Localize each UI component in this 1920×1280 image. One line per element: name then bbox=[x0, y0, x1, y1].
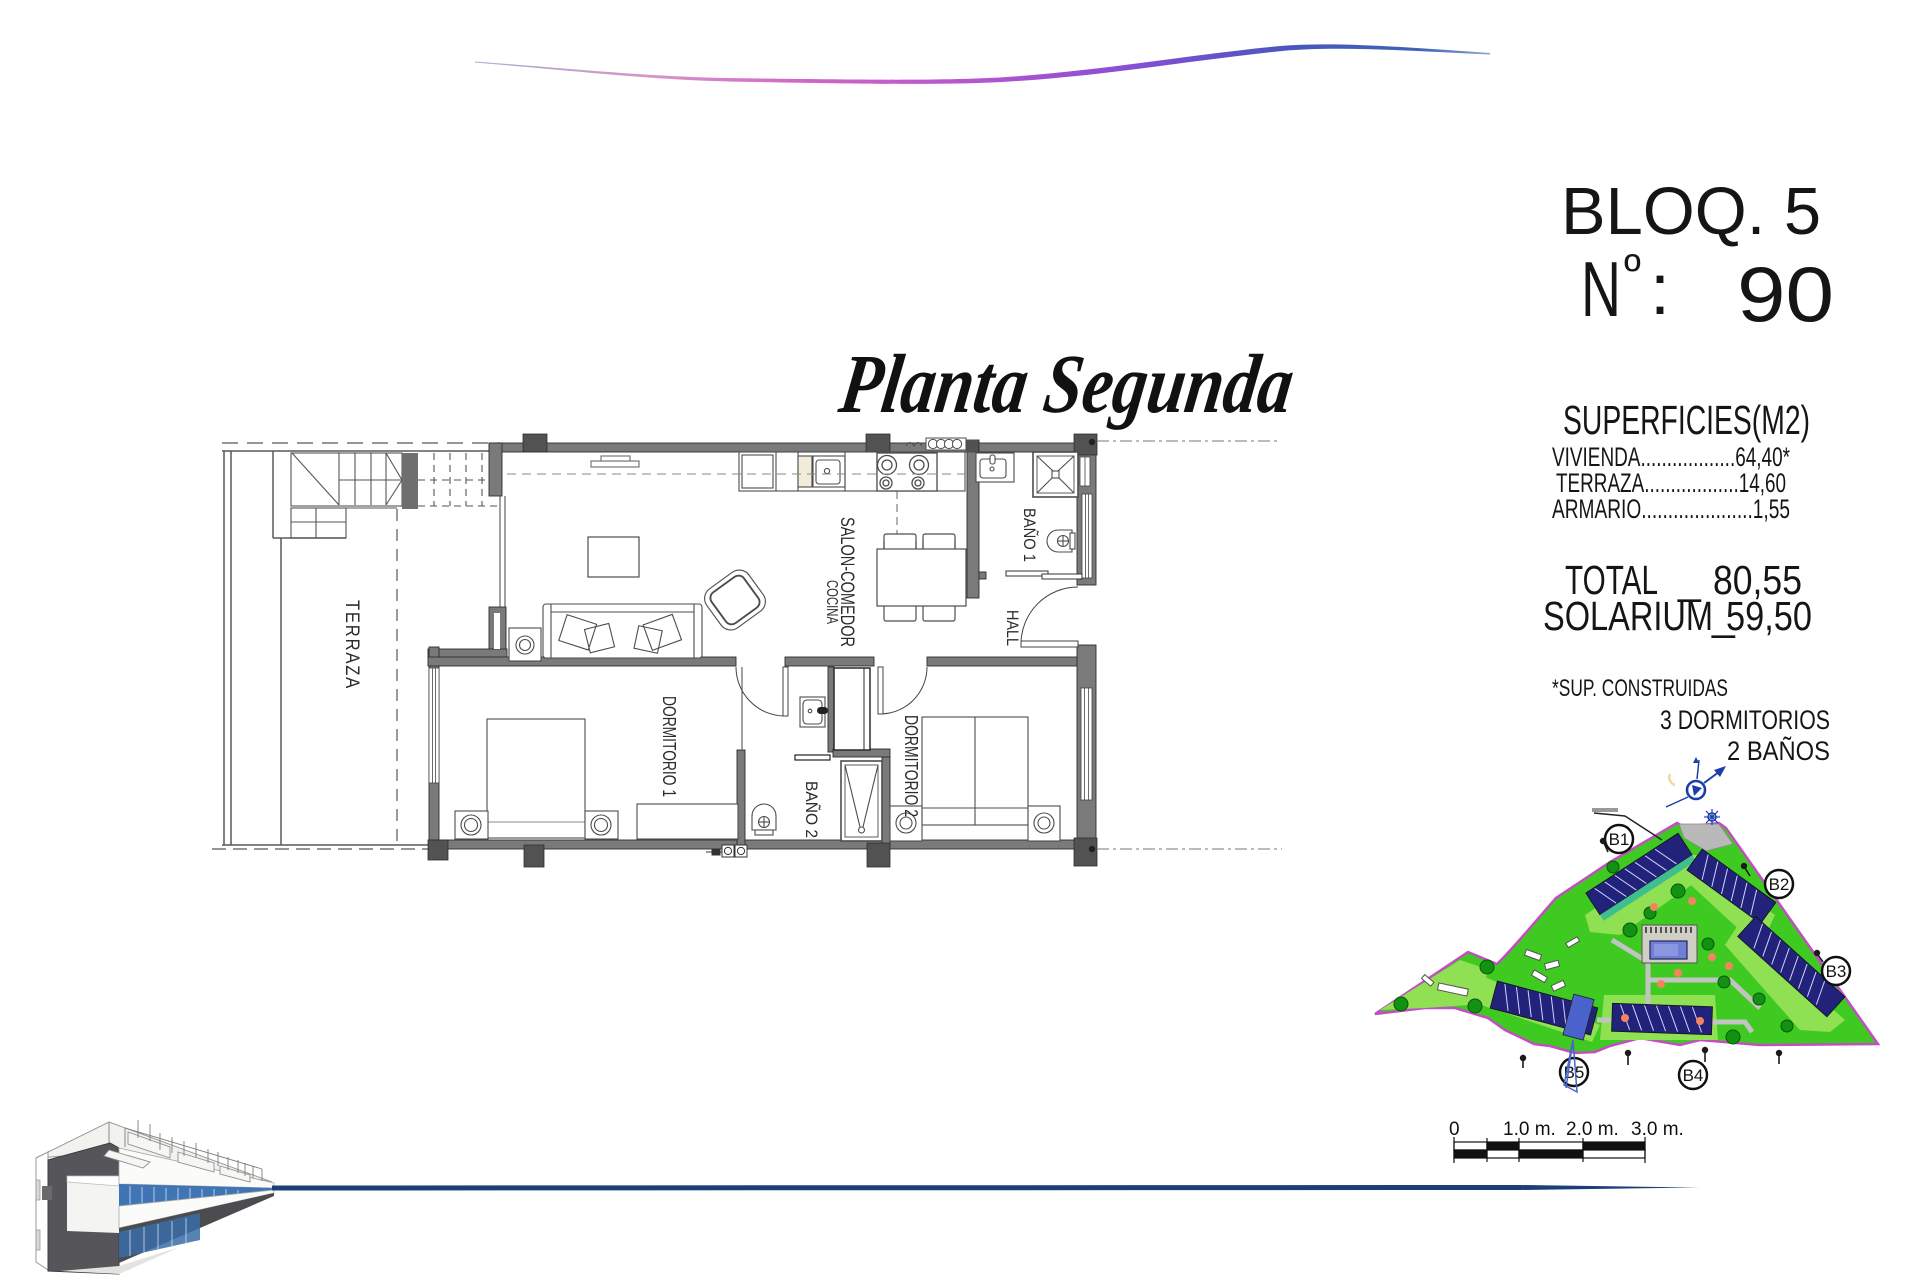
svg-text:BAÑO 1: BAÑO 1 bbox=[1020, 508, 1039, 562]
svg-text:2 BAÑOS: 2 BAÑOS bbox=[1727, 735, 1830, 766]
svg-text:*SUP. CONSTRUIDAS: *SUP. CONSTRUIDAS bbox=[1552, 675, 1728, 702]
svg-text:B4: B4 bbox=[1683, 1066, 1704, 1085]
svg-text:SUPERFICIES(M2): SUPERFICIES(M2) bbox=[1563, 397, 1810, 443]
svg-text:Planta Segunda: Planta Segunda bbox=[834, 338, 1300, 431]
svg-text:B1: B1 bbox=[1609, 830, 1630, 849]
svg-text:COCINA: COCINA bbox=[823, 580, 840, 624]
svg-text:HALL: HALL bbox=[1003, 610, 1022, 646]
svg-text:DORMITORIO 2: DORMITORIO 2 bbox=[901, 715, 921, 817]
svg-text::: : bbox=[1650, 250, 1670, 330]
svg-text:BAÑO 2: BAÑO 2 bbox=[802, 781, 821, 838]
svg-text:0: 0 bbox=[1449, 1119, 1460, 1140]
svg-text:ARMARIO.....................1,: ARMARIO.....................1,55 bbox=[1552, 494, 1790, 524]
svg-text:B3: B3 bbox=[1826, 962, 1847, 981]
svg-text:BLOQ. 5: BLOQ. 5 bbox=[1561, 174, 1821, 249]
svg-text:N: N bbox=[1581, 245, 1621, 333]
svg-text:º: º bbox=[1624, 244, 1641, 296]
svg-text:TERRAZA: TERRAZA bbox=[341, 600, 362, 690]
svg-text:B2: B2 bbox=[1769, 875, 1790, 894]
svg-text:3.0 m.: 3.0 m. bbox=[1631, 1119, 1684, 1140]
svg-text:90: 90 bbox=[1737, 250, 1834, 338]
svg-text:1.0 m.: 1.0 m. bbox=[1503, 1119, 1556, 1140]
svg-text:59,50: 59,50 bbox=[1726, 593, 1812, 639]
svg-text:2.0 m.: 2.0 m. bbox=[1566, 1119, 1619, 1140]
svg-text:DORMITORIO 1: DORMITORIO 1 bbox=[659, 696, 679, 797]
svg-text:3 DORMITORIOS: 3 DORMITORIOS bbox=[1660, 705, 1830, 735]
svg-text:SOLARIUM: SOLARIUM bbox=[1543, 593, 1713, 639]
